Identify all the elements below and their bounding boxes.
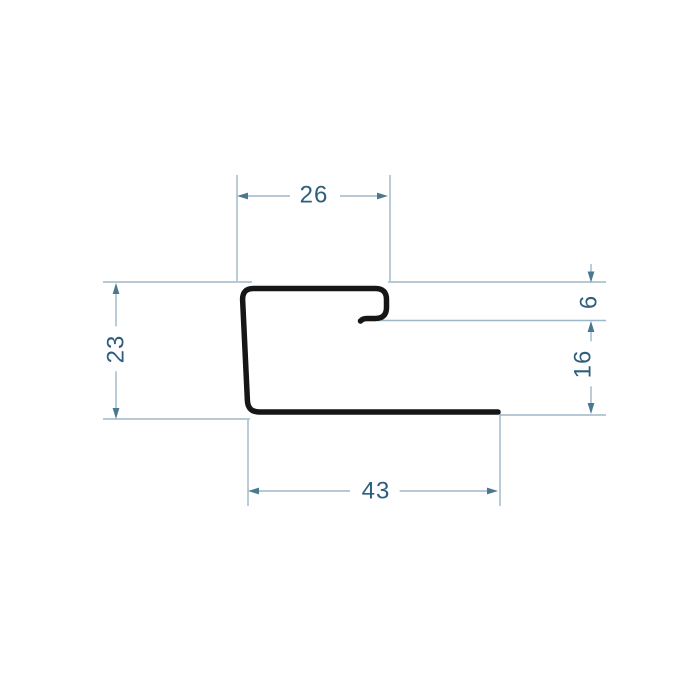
- dim-label-left-height: 23: [103, 327, 128, 372]
- arrow-right-icon: [377, 193, 388, 200]
- arrow-left-icon: [237, 193, 248, 200]
- dim-label-bottom-width: 43: [353, 478, 400, 503]
- arrow-down-outside-icon: [588, 272, 595, 283]
- dim-label-right-lower: 16: [570, 342, 595, 387]
- technical-drawing-canvas: 26 23 6 16 43: [0, 0, 700, 700]
- profile-outline: [243, 289, 498, 413]
- arrow-down-icon: [113, 408, 120, 419]
- arrowheads: [113, 193, 595, 495]
- arrow-left-bottom-icon: [248, 488, 259, 495]
- arrow-down-inside-icon: [588, 403, 595, 414]
- dimension-lines: [116, 196, 591, 491]
- arrow-up-icon: [113, 283, 120, 294]
- arrow-right-bottom-icon: [487, 488, 498, 495]
- dim-label-top-width: 26: [291, 182, 338, 207]
- extension-lines: [103, 175, 606, 506]
- dim-label-right-upper: 6: [576, 287, 601, 317]
- arrow-up-inside-icon: [588, 321, 595, 332]
